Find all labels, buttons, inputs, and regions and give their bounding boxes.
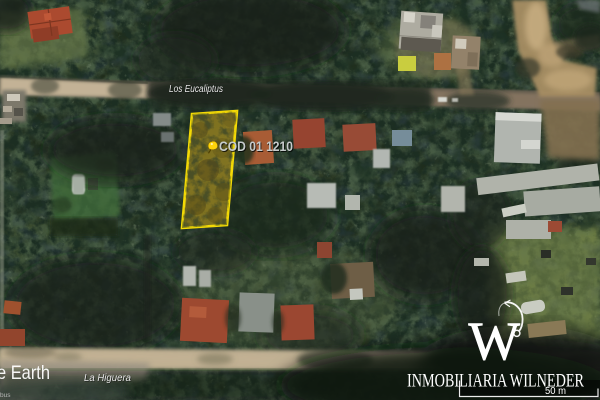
svg-text:bus: bus xyxy=(0,392,11,399)
svg-text:INMOBILIARIA WILNEDER: INMOBILIARIA WILNEDER xyxy=(407,372,584,392)
svg-text:e Earth: e Earth xyxy=(0,362,50,384)
svg-text:La Higuera: La Higuera xyxy=(84,373,132,384)
svg-text:Los Eucaliptus: Los Eucaliptus xyxy=(169,84,223,95)
svg-text:W: W xyxy=(469,310,521,371)
svg-text:COD 01 1210: COD 01 1210 xyxy=(219,139,293,155)
